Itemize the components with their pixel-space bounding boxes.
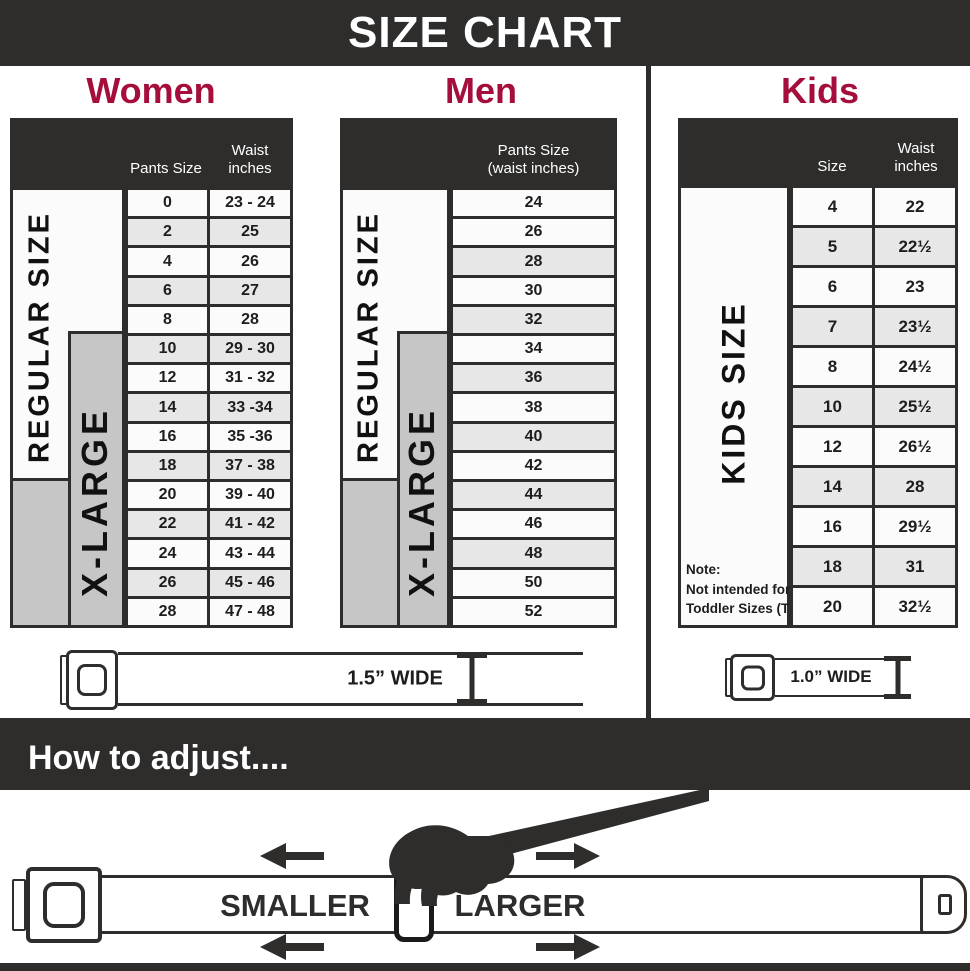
waist-cell: 43 - 44: [210, 540, 290, 566]
waist-cell: 28: [875, 468, 955, 505]
men-regular-size-label: REGULAR SIZE: [353, 211, 386, 463]
size-cell: 14: [128, 394, 207, 420]
kids-size-range-area: KIDS SIZE Note: Not intended for Toddler…: [678, 185, 790, 628]
pinching-hand-icon: [360, 786, 710, 908]
size-cell: 2: [128, 219, 207, 245]
women-xlarge-zone-lower: [13, 478, 68, 625]
table-row: 20 32½: [793, 588, 955, 625]
kids-belt-width-label: 1.0” WIDE: [790, 667, 871, 687]
table-row: 8 28: [128, 307, 290, 333]
waist-cell: 35 -36: [210, 424, 290, 450]
kids-table-body: 4 22 5 22½ 6 23 7 23½ 8 24½ 10 25½ 12 26…: [790, 185, 958, 628]
table-row: 12 26½: [793, 428, 955, 465]
size-cell: 0: [128, 190, 207, 216]
size-chart-page: SIZE CHART Women Men Kids Pants Size Wai…: [0, 0, 970, 971]
size-cell: 44: [453, 482, 614, 508]
women-size-range-area: REGULAR SIZE X-LARGE: [10, 187, 125, 628]
kids-width-marker-icon: [884, 656, 911, 699]
table-row: 10 29 - 30: [128, 336, 290, 362]
size-cell: 14: [793, 468, 872, 505]
women-heading: Women: [0, 70, 302, 112]
waist-cell: 23½: [875, 308, 955, 345]
size-cell: 34: [453, 336, 614, 362]
table-row: 24: [453, 190, 614, 216]
table-row: 12 31 - 32: [128, 365, 290, 391]
adult-seatbelt-buckle-icon: [66, 650, 118, 710]
size-cell: 24: [128, 540, 207, 566]
kids-size-label: KIDS SIZE: [716, 301, 753, 484]
belt-tip-icon: [920, 875, 967, 934]
waist-cell: 26½: [875, 428, 955, 465]
size-cell: 26: [453, 219, 614, 245]
arrow-right-icon: [536, 934, 600, 960]
waist-cell: 28: [210, 307, 290, 333]
size-cell: 52: [453, 599, 614, 625]
table-row: 28: [453, 248, 614, 274]
size-cell: 6: [128, 278, 207, 304]
men-table-body: 24 26 28 30 32 34 36 38 40 42 44 46 48 5…: [450, 187, 617, 628]
table-row: 24 43 - 44: [128, 540, 290, 566]
size-cell: 24: [453, 190, 614, 216]
section-divider: [646, 66, 651, 718]
how-to-adjust-title: How to adjust....: [0, 731, 289, 778]
table-row: 44: [453, 482, 614, 508]
table-row: 2 25: [128, 219, 290, 245]
waist-cell: 37 - 38: [210, 453, 290, 479]
table-row: 36: [453, 365, 614, 391]
men-heading: Men: [345, 70, 617, 112]
waist-cell: 25: [210, 219, 290, 245]
size-cell: 18: [128, 453, 207, 479]
table-row: 6 23: [793, 268, 955, 305]
waist-cell: 25½: [875, 388, 955, 425]
waist-cell: 23 - 24: [210, 190, 290, 216]
men-xlarge-zone-lower: [343, 478, 397, 625]
waist-cell: 41 - 42: [210, 511, 290, 537]
adjust-seatbelt-buckle-icon: [26, 867, 102, 943]
kids-size-table: Size Waistinches KIDS SIZE Note: Not int…: [678, 118, 958, 628]
kids-col1-header: Size: [790, 158, 874, 177]
women-table-body: 0 23 - 24 2 25 4 26 6 27 8 28 10 29 - 30…: [125, 187, 293, 628]
size-cell: 10: [128, 336, 207, 362]
waist-cell: 24½: [875, 348, 955, 385]
table-row: 48: [453, 540, 614, 566]
adjust-buckle-plate-icon: [12, 879, 26, 931]
size-cell: 36: [453, 365, 614, 391]
table-row: 16 35 -36: [128, 424, 290, 450]
waist-cell: 29½: [875, 508, 955, 545]
table-row: 8 24½: [793, 348, 955, 385]
table-row: 4 26: [128, 248, 290, 274]
size-cell: 4: [793, 188, 872, 225]
women-xlarge-label: X-LARGE: [74, 407, 116, 597]
table-row: 30: [453, 278, 614, 304]
kids-note: Note: Not intended for Toddler Sizes (T): [686, 560, 794, 619]
women-col1-header: Pants Size: [125, 160, 207, 179]
table-row: 50: [453, 570, 614, 596]
waist-cell: 29 - 30: [210, 336, 290, 362]
table-row: 14 28: [793, 468, 955, 505]
size-cell: 46: [453, 511, 614, 537]
table-row: 6 27: [128, 278, 290, 304]
table-row: 0 23 - 24: [128, 190, 290, 216]
size-cell: 40: [453, 424, 614, 450]
arrow-left-icon: [260, 934, 324, 960]
table-row: 40: [453, 424, 614, 450]
size-cell: 8: [128, 307, 207, 333]
adult-width-marker-icon: [457, 653, 487, 704]
table-row: 14 33 -34: [128, 394, 290, 420]
size-cell: 22: [128, 511, 207, 537]
adult-belt-width-label: 1.5” WIDE: [347, 668, 443, 691]
women-regular-size-label: REGULAR SIZE: [24, 211, 57, 463]
size-cell: 8: [793, 348, 872, 385]
size-cell: 16: [793, 508, 872, 545]
size-cell: 18: [793, 548, 872, 585]
table-row: 4 22: [793, 188, 955, 225]
waist-cell: 39 - 40: [210, 482, 290, 508]
men-size-table: Pants Size(waist inches) REGULAR SIZE X-…: [340, 118, 617, 628]
waist-cell: 45 - 46: [210, 570, 290, 596]
table-row: 22 41 - 42: [128, 511, 290, 537]
size-cell: 12: [128, 365, 207, 391]
page-title: SIZE CHART: [348, 8, 622, 58]
kids-col2-header: Waistinches: [874, 140, 958, 178]
table-row: 10 25½: [793, 388, 955, 425]
size-cell: 32: [453, 307, 614, 333]
table-row: 52: [453, 599, 614, 625]
men-size-range-area: REGULAR SIZE X-LARGE: [340, 187, 450, 628]
table-row: 5 22½: [793, 228, 955, 265]
waist-cell: 22½: [875, 228, 955, 265]
size-cell: 50: [453, 570, 614, 596]
men-table-header: Pants Size(waist inches): [340, 118, 617, 187]
size-cell: 28: [453, 248, 614, 274]
men-xlarge-label: X-LARGE: [401, 407, 443, 597]
table-row: 28 47 - 48: [128, 599, 290, 625]
table-row: 7 23½: [793, 308, 955, 345]
kids-table-header: Size Waistinches: [678, 118, 958, 185]
table-row: 20 39 - 40: [128, 482, 290, 508]
waist-cell: 31 - 32: [210, 365, 290, 391]
waist-cell: 47 - 48: [210, 599, 290, 625]
size-cell: 6: [793, 268, 872, 305]
table-row: 38: [453, 394, 614, 420]
size-cell: 10: [793, 388, 872, 425]
size-cell: 28: [128, 599, 207, 625]
table-row: 32: [453, 307, 614, 333]
size-cell: 4: [128, 248, 207, 274]
women-col2-header: Waistinches: [207, 142, 293, 180]
waist-cell: 31: [875, 548, 955, 585]
size-cell: 20: [128, 482, 207, 508]
waist-cell: 23: [875, 268, 955, 305]
size-cell: 26: [128, 570, 207, 596]
size-cell: 12: [793, 428, 872, 465]
size-cell: 20: [793, 588, 872, 625]
size-cell: 7: [793, 308, 872, 345]
table-row: 26: [453, 219, 614, 245]
table-row: 42: [453, 453, 614, 479]
waist-cell: 33 -34: [210, 394, 290, 420]
waist-cell: 26: [210, 248, 290, 274]
kids-seatbelt-buckle-icon: [730, 654, 775, 701]
size-cell: 48: [453, 540, 614, 566]
size-cell: 5: [793, 228, 872, 265]
table-row: 34: [453, 336, 614, 362]
women-size-table: Pants Size Waistinches REGULAR SIZE X-LA…: [10, 118, 293, 628]
size-cell: 16: [128, 424, 207, 450]
men-col-header: Pants Size(waist inches): [450, 142, 617, 180]
size-cell: 30: [453, 278, 614, 304]
kids-heading: Kids: [670, 70, 970, 112]
bottom-strip: [0, 963, 970, 971]
size-cell: 38: [453, 394, 614, 420]
women-table-header: Pants Size Waistinches: [10, 118, 293, 187]
table-row: 18 31: [793, 548, 955, 585]
table-row: 18 37 - 38: [128, 453, 290, 479]
table-row: 26 45 - 46: [128, 570, 290, 596]
title-bar: SIZE CHART: [0, 0, 970, 66]
table-row: 46: [453, 511, 614, 537]
waist-cell: 22: [875, 188, 955, 225]
waist-cell: 32½: [875, 588, 955, 625]
waist-cell: 27: [210, 278, 290, 304]
size-cell: 42: [453, 453, 614, 479]
how-to-adjust-band: How to adjust....: [0, 718, 970, 790]
table-row: 16 29½: [793, 508, 955, 545]
arrow-left-icon: [260, 843, 324, 869]
